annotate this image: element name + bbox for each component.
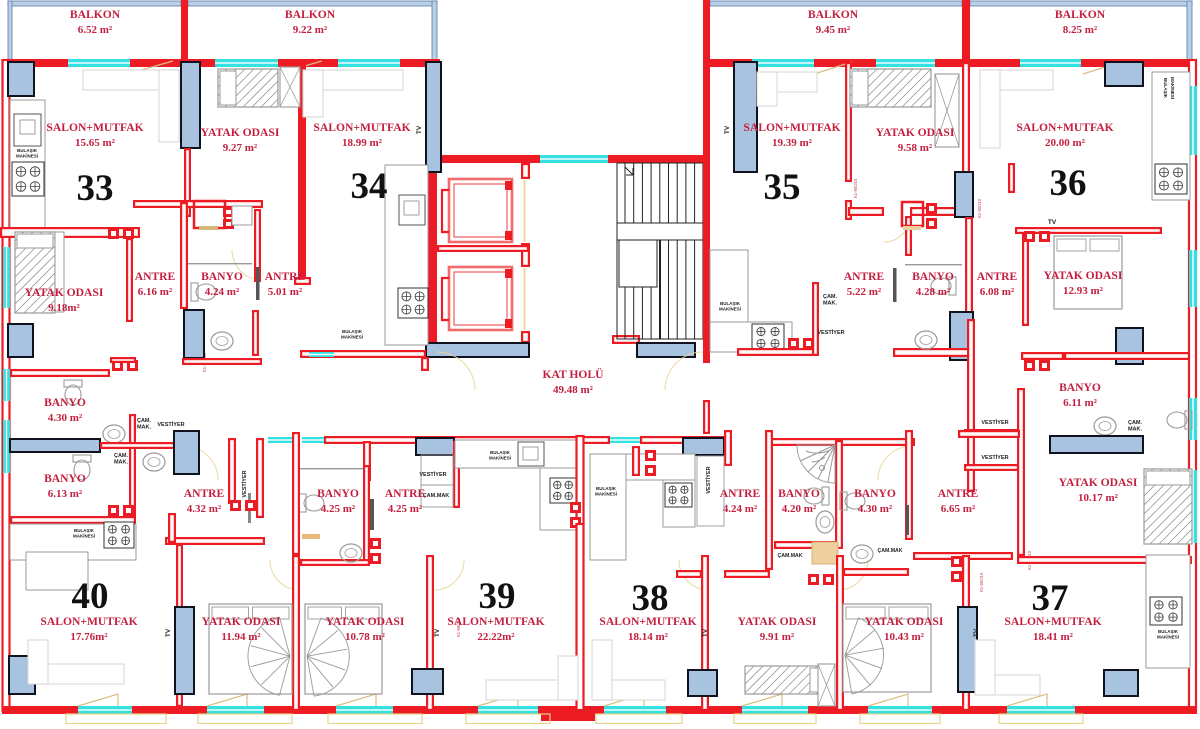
- svg-text:BANYO: BANYO: [912, 270, 954, 283]
- svg-text:MAKİNESİ: MAKİNESİ: [1157, 634, 1179, 640]
- svg-text:11.94 m²: 11.94 m²: [221, 631, 261, 643]
- svg-text:BALKON: BALKON: [285, 8, 336, 21]
- svg-text:BULAŞIK: BULAŞIK: [720, 301, 741, 306]
- svg-text:VESTİYER: VESTİYER: [981, 454, 1008, 461]
- svg-text:4.30 m²: 4.30 m²: [48, 412, 83, 424]
- svg-text:BALKON: BALKON: [70, 8, 121, 21]
- svg-text:ANTRE: ANTRE: [720, 487, 761, 500]
- svg-text:18.99 m²: 18.99 m²: [342, 137, 383, 149]
- svg-text:15.65 m²: 15.65 m²: [75, 137, 116, 149]
- svg-text:4.24 m²: 4.24 m²: [723, 503, 758, 515]
- svg-text:6.52 m²: 6.52 m²: [78, 24, 113, 36]
- svg-text:BALKON: BALKON: [808, 8, 859, 21]
- svg-text:ÇAM.: ÇAM.: [823, 294, 838, 300]
- svg-text:4.25 m²: 4.25 m²: [388, 503, 423, 515]
- svg-text:TV: TV: [724, 125, 731, 134]
- svg-text:K1-90/210: K1-90/210: [979, 572, 984, 592]
- svg-text:5.01 m²: 5.01 m²: [268, 286, 303, 298]
- svg-text:TV: TV: [416, 125, 423, 134]
- svg-text:35: 35: [764, 167, 801, 208]
- svg-text:SALON+MUTFAK: SALON+MUTFAK: [46, 121, 143, 134]
- svg-text:4.20 m²: 4.20 m²: [782, 503, 817, 515]
- svg-text:36: 36: [1050, 163, 1087, 204]
- svg-text:9.27 m²: 9.27 m²: [223, 142, 258, 154]
- svg-text:TV: TV: [165, 628, 172, 637]
- svg-text:SALON+MUTFAK: SALON+MUTFAK: [743, 121, 840, 134]
- svg-text:9.18m²: 9.18m²: [48, 302, 80, 314]
- svg-text:TV: TV: [702, 628, 709, 637]
- svg-text:4.25 m²: 4.25 m²: [321, 503, 356, 515]
- svg-text:4.28 m²: 4.28 m²: [916, 286, 951, 298]
- svg-text:5.22 m²: 5.22 m²: [847, 286, 882, 298]
- svg-text:BANYO: BANYO: [317, 487, 359, 500]
- svg-text:MAKİNESİ: MAKİNESİ: [73, 533, 95, 539]
- svg-text:ANTRE: ANTRE: [977, 270, 1018, 283]
- svg-text:9.45 m²: 9.45 m²: [816, 24, 851, 36]
- svg-text:ANTRE: ANTRE: [385, 487, 426, 500]
- svg-text:BANYO: BANYO: [854, 487, 896, 500]
- svg-text:VESTİYER: VESTİYER: [981, 419, 1008, 426]
- svg-text:YATAK ODASI: YATAK ODASI: [25, 286, 104, 299]
- svg-text:17.76m²: 17.76m²: [70, 631, 108, 643]
- svg-text:YATAK ODASI: YATAK ODASI: [1044, 269, 1123, 282]
- svg-text:ANTRE: ANTRE: [844, 270, 885, 283]
- svg-text:19.39 m²: 19.39 m²: [772, 137, 813, 149]
- svg-text:10.78 m²: 10.78 m²: [345, 631, 386, 643]
- svg-text:ANTRE: ANTRE: [184, 487, 225, 500]
- svg-text:BANYO: BANYO: [1059, 381, 1101, 394]
- svg-text:34: 34: [351, 166, 388, 207]
- svg-text:TV: TV: [1048, 219, 1057, 226]
- svg-text:VESTİYER: VESTİYER: [419, 471, 446, 478]
- svg-text:YATAK ODASI: YATAK ODASI: [738, 615, 817, 628]
- svg-text:MAKİNESİ: MAKİNESİ: [489, 455, 511, 461]
- svg-text:4.30 m²: 4.30 m²: [858, 503, 893, 515]
- svg-text:MAKİNESİ: MAKİNESİ: [719, 306, 741, 312]
- svg-text:6.13 m²: 6.13 m²: [48, 488, 83, 500]
- svg-text:YATAK ODASI: YATAK ODASI: [865, 615, 944, 628]
- svg-text:ÇAM.MAK: ÇAM.MAK: [877, 548, 902, 554]
- svg-text:YATAK ODASI: YATAK ODASI: [1059, 476, 1138, 489]
- svg-text:ÇAM.: ÇAM.: [114, 453, 129, 459]
- svg-text:ÇAM.MAK: ÇAM.MAK: [777, 553, 802, 559]
- svg-text:6.65 m²: 6.65 m²: [941, 503, 976, 515]
- svg-text:6.11 m²: 6.11 m²: [1063, 397, 1098, 409]
- svg-text:6.08 m²: 6.08 m²: [980, 286, 1015, 298]
- svg-text:MAK.: MAK.: [823, 301, 838, 307]
- svg-text:VESTİYER: VESTİYER: [705, 466, 712, 493]
- svg-text:ANTRE: ANTRE: [938, 487, 979, 500]
- svg-text:TV: TV: [434, 628, 441, 637]
- svg-text:ÇAM.: ÇAM.: [1128, 420, 1143, 426]
- svg-text:VESTİYER: VESTİYER: [241, 470, 248, 497]
- svg-text:38: 38: [632, 578, 669, 619]
- svg-text:BULAŞIK: BULAŞIK: [342, 329, 363, 334]
- svg-text:ANTRE: ANTRE: [135, 270, 176, 283]
- svg-text:VESTİYER: VESTİYER: [817, 329, 844, 336]
- svg-text:33: 33: [77, 168, 114, 209]
- svg-text:37: 37: [1032, 578, 1069, 619]
- svg-text:ÇAM.MAK: ÇAM.MAK: [423, 493, 450, 499]
- svg-text:39: 39: [479, 576, 516, 617]
- svg-text:SALON+MUTFAK: SALON+MUTFAK: [313, 121, 410, 134]
- svg-text:4.32 m²: 4.32 m²: [187, 503, 222, 515]
- svg-text:BULAŞIK: BULAŞIK: [596, 486, 617, 491]
- svg-text:BANYO: BANYO: [44, 396, 86, 409]
- svg-text:8.25 m²: 8.25 m²: [1063, 24, 1098, 36]
- svg-text:12.93 m²: 12.93 m²: [1063, 285, 1104, 297]
- svg-text:VESTİYER: VESTİYER: [157, 421, 184, 428]
- svg-text:MAKİNESİ: MAKİNESİ: [1170, 77, 1176, 99]
- svg-text:YATAK ODASI: YATAK ODASI: [326, 615, 405, 628]
- svg-text:KAT HOLÜ: KAT HOLÜ: [542, 366, 604, 381]
- svg-text:BANYO: BANYO: [778, 487, 820, 500]
- svg-text:ANTRE: ANTRE: [265, 270, 306, 283]
- svg-text:BULAŞIK: BULAŞIK: [490, 450, 511, 455]
- svg-text:MAKİNESİ: MAKİNESİ: [595, 491, 617, 497]
- svg-text:ÇAM.: ÇAM.: [137, 418, 152, 424]
- svg-text:MAKİNESİ: MAKİNESİ: [16, 153, 38, 159]
- svg-text:SALON+MUTFAK: SALON+MUTFAK: [1016, 121, 1113, 134]
- svg-text:10.17 m²: 10.17 m²: [1078, 492, 1119, 504]
- svg-text:K1-90/210: K1-90/210: [977, 198, 982, 218]
- svg-text:9.22 m²: 9.22 m²: [293, 24, 328, 36]
- svg-text:6.16 m²: 6.16 m²: [138, 286, 173, 298]
- svg-text:18.14 m²: 18.14 m²: [628, 631, 669, 643]
- svg-text:18.41 m²: 18.41 m²: [1033, 631, 1074, 643]
- svg-text:20.00 m²: 20.00 m²: [1045, 137, 1086, 149]
- svg-text:K1-90/210: K1-90/210: [853, 178, 858, 198]
- svg-text:9.91 m²: 9.91 m²: [760, 631, 795, 643]
- svg-text:9.58 m²: 9.58 m²: [898, 142, 933, 154]
- svg-text:BALKON: BALKON: [1055, 8, 1106, 21]
- svg-text:YATAK ODASI: YATAK ODASI: [876, 126, 955, 139]
- svg-text:BULAŞIK: BULAŞIK: [74, 528, 95, 533]
- svg-text:10.43 m²: 10.43 m²: [884, 631, 925, 643]
- svg-text:YATAK ODASI: YATAK ODASI: [201, 126, 280, 139]
- svg-text:MAK.: MAK.: [137, 425, 152, 431]
- svg-text:MAK.: MAK.: [114, 460, 129, 466]
- svg-text:40: 40: [72, 576, 109, 617]
- svg-text:4.24 m²: 4.24 m²: [205, 286, 240, 298]
- svg-text:MAK.: MAK.: [1128, 427, 1143, 433]
- svg-text:BULAŞIK: BULAŞIK: [17, 148, 38, 153]
- svg-text:TV: TV: [973, 628, 980, 637]
- svg-text:BULAŞIK: BULAŞIK: [1158, 629, 1179, 634]
- svg-text:MAKİNESİ: MAKİNESİ: [341, 334, 363, 340]
- svg-text:BULAŞIK: BULAŞIK: [1163, 78, 1168, 99]
- svg-text:YATAK ODASI: YATAK ODASI: [202, 615, 281, 628]
- svg-text:BANYO: BANYO: [44, 472, 86, 485]
- svg-text:49.48 m²: 49.48 m²: [553, 384, 594, 396]
- svg-text:22.22m²: 22.22m²: [477, 631, 515, 643]
- svg-text:BANYO: BANYO: [201, 270, 243, 283]
